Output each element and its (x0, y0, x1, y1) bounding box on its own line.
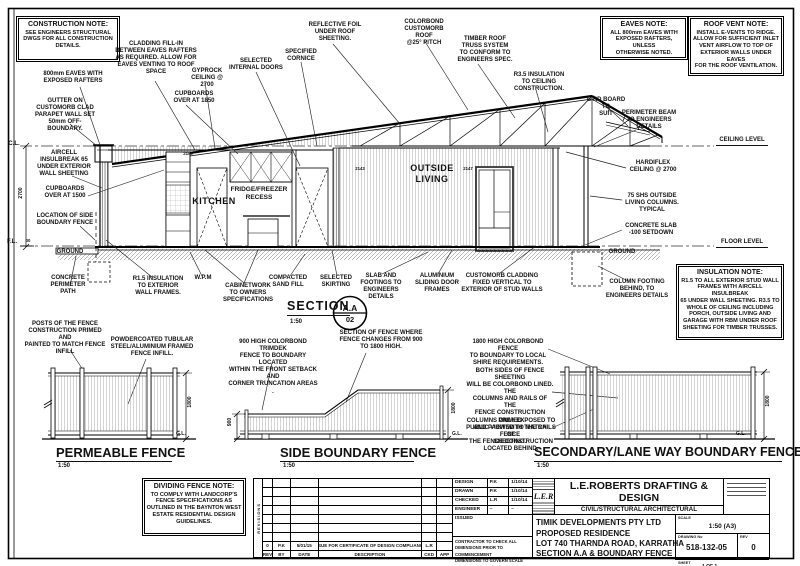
label-r35-insulation: R3.5 INSULATION TO CEILING CONSTRUCTION. (508, 72, 570, 93)
note-body: R1.5 TO ALL EXTERIOR STUD WALL FRAMES WI… (680, 278, 780, 332)
signoff-role: CHECKED (453, 497, 487, 505)
dividing-fence-note: DIVIDING FENCE NOTE: TO COMPLY WITH LAND… (142, 478, 246, 536)
issued-label: ISSUED (453, 515, 487, 524)
label-r15-insulation: R1.5 INSULATION TO EXTERIOR WALL FRAMES. (128, 276, 188, 297)
label-perimeter-beam: PERIMETER BEAM TO ENGINEERS DETAILS (616, 110, 682, 131)
label-reflective-foil: REFLECTIVE FOIL UNDER ROOF SHEETING. (305, 22, 365, 43)
signoff-initials: P.K (487, 479, 509, 487)
label-cl: C.L. (6, 141, 22, 148)
rev-header-app: APP (437, 551, 452, 559)
secondary-fence-scale: 1:50 (537, 463, 549, 469)
label-skirting: SELECTED SKIRTING (314, 275, 358, 289)
rev-header-rev: REV (263, 551, 273, 559)
room-outside-living: OUTSIDE LIVING (402, 163, 462, 184)
label-eaves-800: 800mm EAVES WITH EXPOSED RAFTERS (40, 71, 106, 85)
label-ceiling-level: CEILING LEVEL (716, 137, 768, 146)
rev-no: 0 (263, 542, 273, 550)
label-fl: F.L. (4, 239, 20, 246)
rev-header-ckd: CKD (422, 551, 437, 559)
project-sheet-title: SECTION A.A & BOUNDARY FENCE (536, 549, 675, 559)
secondary-fence-gl: G.L. (736, 431, 746, 437)
signoff-date: 1/10/14 (508, 479, 532, 487)
label-aircell: AIRCELL INSULBREAK 65 UNDER EXTERIOR WAL… (30, 150, 98, 178)
label-gyprock: GYPROCK CEILING @ 2700 (186, 68, 228, 89)
note-body: INSTALL E-VENTS TO RIDGE. ALLOW FOR SUFF… (692, 30, 780, 70)
rev-description: ISSUE FOR CERTIFICATE OF DESIGN COMPLIAN… (319, 542, 422, 550)
section-detail-id: A.A (336, 303, 364, 313)
label-gutter: GUTTER ON CUSTOMORB CLAD PARAPET WALL SE… (28, 98, 102, 133)
side-fence-height-left: 900 (227, 411, 233, 433)
label-column-footing: COLUMN FOOTING BEHIND, TO ENGINEERS DETA… (604, 279, 670, 300)
label-cornice: SPECIFIED CORNICE (281, 49, 321, 63)
construction-note: CONSTRUCTION NOTE: SEE ENGINEERS STRUCTU… (16, 16, 120, 62)
revision-table: 0 P.K 5/01/15 ISSUE FOR CERTIFICATE OF D… (263, 479, 453, 557)
label-wpm: W.P.M (190, 275, 216, 282)
rev-header-date: DATE (291, 551, 319, 559)
revisions-strip: REVISIONS (254, 479, 263, 557)
label-aluminium-doors: ALUMINIUM SLIDING DOOR FRAMES (413, 273, 461, 294)
project-address: LOT 740 THARNDA ROAD, KARRATHA (536, 539, 675, 549)
label-hardiflex: HARDIFLEX CEILING @ 2700 (621, 160, 685, 174)
label-fence-location: LOCATION OF SIDE BOUNDARY FENCE (32, 213, 98, 227)
signoff-initials: L.R (487, 497, 509, 505)
revision-header-row: REV BY DATE DESCRIPTION CKD APP (263, 551, 452, 559)
insulation-note: INSULATION NOTE: R1.5 TO ALL EXTERIOR ST… (676, 264, 784, 340)
title-block: REVISIONS 0 P.K 5/01/15 ISSUE FOR CERTIF… (253, 478, 770, 558)
side-fence-height: 1800 (451, 397, 457, 419)
section-scale: 1:50 (290, 319, 302, 325)
room-fridge-recess: FRIDGE/FREEZER RECESS (229, 186, 289, 201)
rev-label: REV (740, 535, 748, 539)
project-details: TIMIK DEVELOPMENTS PTY LTD PROPOSED RESI… (533, 515, 676, 560)
secondary-fence-title: SECONDARY/LANE WAY BOUNDARY FENCE (534, 446, 782, 462)
label-ground-left: GROUND (52, 249, 88, 256)
company-name: L.E.ROBERTS DRAFTING & DESIGN (555, 481, 723, 506)
label-floor-level: FLOOR LEVEL (716, 239, 768, 248)
scale-value: 1:50 (A3) (709, 524, 736, 531)
company-logo-text: L.E.R (533, 492, 555, 501)
note-body: ALL 800mm EAVES WITH EXPOSED RAFTERS, UN… (604, 30, 684, 57)
side-fence-gl: G.L. (452, 431, 462, 437)
note-body: TO COMPLY WITH LANDCORP'S FENCE SPECIFIC… (146, 492, 242, 526)
dim-2700: 2700 (18, 182, 24, 204)
label-internal-doors: SELECTED INTERNAL DOORS (227, 58, 285, 72)
company-logo: L.E.R (533, 479, 555, 514)
project-type: PROPOSED RESIDENCE (536, 529, 675, 539)
side-fence-scale: 1:50 (283, 463, 295, 469)
sheet-label: SHEET (678, 561, 691, 565)
note-title: ROOF VENT NOTE: (692, 21, 780, 29)
company-tagline: CIVIL/STRUCTURAL ARCHITECTURAL (555, 506, 723, 514)
signoff-role: DESIGN (453, 479, 487, 487)
signoff-initials: P.K (487, 488, 509, 496)
note-body: SEE ENGINEERS STRUCTURAL DWGS FOR ALL CO… (20, 30, 116, 50)
label-slab-footings: SLAB AND FOOTINGS TO ENGINEERS DETAILS (357, 273, 405, 301)
section-sheet-no: 02 (341, 316, 359, 325)
label-fence-posts: POSTS OF THE FENCE CONSTRUCTION PRIMED A… (22, 321, 108, 356)
rev-app (437, 542, 452, 550)
secondary-fence-height: 1800 (765, 390, 771, 412)
side-fence-title: SIDE BOUNDARY FENCE (280, 446, 414, 462)
scale-cell: SCALE 1:50 (A3) (676, 515, 769, 534)
signoff-initials: – (487, 506, 509, 514)
signoff-date: 1/10/14 (508, 497, 532, 505)
company-project-block: L.E.R L.E.ROBERTS DRAFTING & DESIGN CIVI… (533, 479, 769, 557)
label-sand-fill: COMPACTED SAND FILL (264, 275, 312, 289)
contractor-note: CONTRACTOR TO CHECK ALL DIMENSIONS PRIOR… (453, 537, 532, 566)
drawing-no-label: DRAWING No (678, 535, 702, 539)
drawing-no-cell: DRAWING No 518-132-05 (676, 534, 738, 559)
note-title: DIVIDING FENCE NOTE: (146, 483, 242, 491)
rev-date: 5/01/15 (291, 542, 319, 550)
rev-value: 0 (751, 544, 755, 552)
label-cupboards-1500: CUPBOARDS OVER AT 1500 (38, 186, 92, 200)
drawing-no-value: 518-132-05 (686, 544, 727, 552)
project-client: TIMIK DEVELOPMENTS PTY LTD (536, 518, 675, 528)
rev-cell: REV 0 (738, 534, 769, 559)
permeable-fence-title: PERMEABLE FENCE (56, 446, 172, 462)
label-cupboards-1850: CUPBOARDS OVER AT 1850 (172, 91, 216, 105)
label-powdercoated: POWDERCOATED TUBULAR STEEL/ALUMINIUM FRA… (110, 337, 194, 358)
signoff-role: DRAWN (453, 488, 487, 496)
label-customorb-cladding: CUSTOMORB CLADDING FIXED VERTICAL TO EXT… (460, 273, 544, 294)
rev-ckd: L.R (422, 542, 437, 550)
dim-2150: 2150 (178, 151, 198, 156)
dim-2147: 2147 (458, 166, 478, 171)
permeable-fence-gl: G.L. (176, 431, 186, 437)
permeable-fence-scale: 1:50 (58, 463, 70, 469)
label-truss: TIMBER ROOF TRUSS SYSTEM TO CONFORM TO E… (454, 36, 516, 64)
permeable-fence-height: 1800 (187, 391, 193, 413)
signoff-role: ENGINEER (453, 506, 487, 514)
label-fence-change: SECTION OF FENCE WHERE FENCE CHANGES FRO… (338, 330, 424, 351)
revision-entry-row: 0 P.K 5/01/15 ISSUE FOR CERTIFICATE OF D… (263, 542, 452, 551)
label-fence-1800: 1800 HIGH COLORBOND FENCE TO BOUNDARY TO… (468, 339, 548, 367)
label-ground-right: GROUND (604, 249, 640, 256)
label-slab-setdown: CONCRETE SLAB -100 SETDOWN (619, 223, 683, 237)
rev-header-by: BY (273, 551, 291, 559)
signoff-column: DESIGNP.K1/10/14 DRAWNP.K1/10/14 CHECKED… (453, 479, 533, 557)
revisions-label: REVISIONS (256, 503, 261, 534)
drawing-sheet: CONSTRUCTION NOTE: SEE ENGINEERS STRUCTU… (0, 0, 800, 566)
contact-info-lines (723, 479, 769, 514)
label-colorbond-roof: COLORBOND CUSTOMORB ROOF @25° PITCH (397, 19, 451, 47)
signoff-date: – (508, 506, 532, 514)
scale-label: SCALE (678, 516, 691, 520)
label-shs-columns: 75 SHS OUTSIDE LIVING COLUMNS. TYPICAL (619, 193, 685, 214)
eaves-note: EAVES NOTE: ALL 800mm EAVES WITH EXPOSED… (600, 16, 688, 60)
roof-vent-note: ROOF VENT NOTE: INSTALL E-VENTS TO RIDGE… (688, 16, 784, 76)
signoff-date: 1/10/14 (508, 488, 532, 496)
note-title: INSULATION NOTE: (680, 269, 780, 277)
label-fl-value: 00 (22, 238, 34, 243)
label-trimdek-900: 900 HIGH COLORBOND TRIMDEK FENCE TO BOUN… (228, 339, 318, 396)
note-title: EAVES NOTE: (604, 21, 684, 29)
permeable-fence (42, 368, 196, 442)
dim-2143: 2143 (350, 166, 370, 171)
label-concrete-path: CONCRETE PERIMETER PATH (46, 275, 90, 296)
note-title: CONSTRUCTION NOTE: (20, 21, 116, 29)
rev-header-description: DESCRIPTION (319, 551, 422, 559)
rev-by: P.K (273, 542, 291, 550)
